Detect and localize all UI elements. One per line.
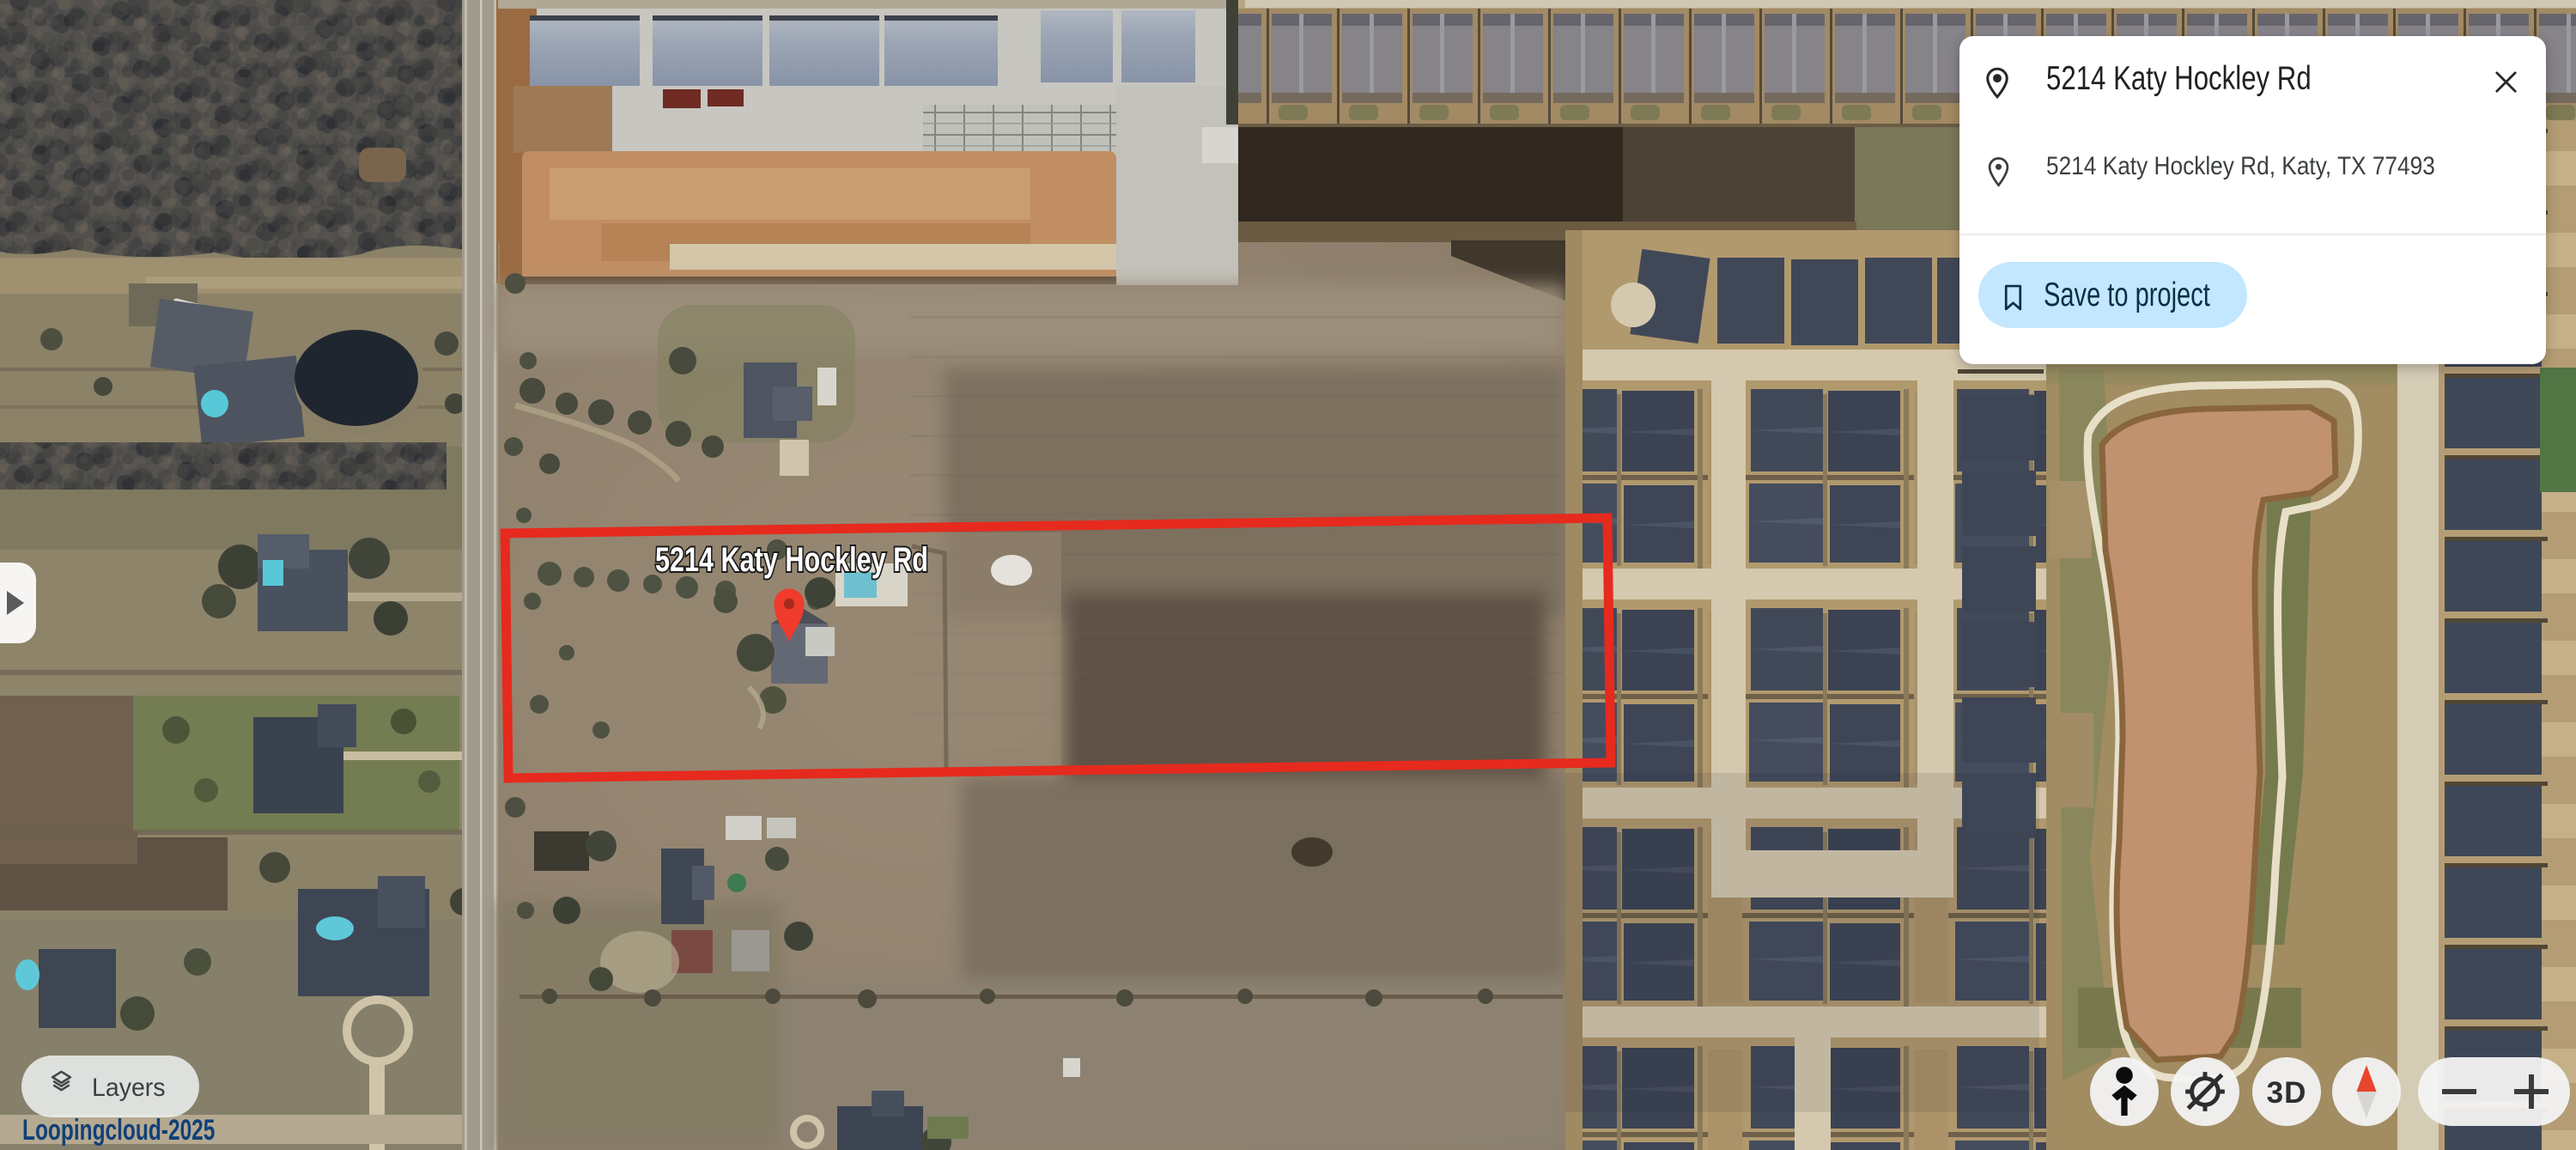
svg-text:5214 Katy Hockley Rd: 5214 Katy Hockley Rd — [655, 541, 928, 579]
